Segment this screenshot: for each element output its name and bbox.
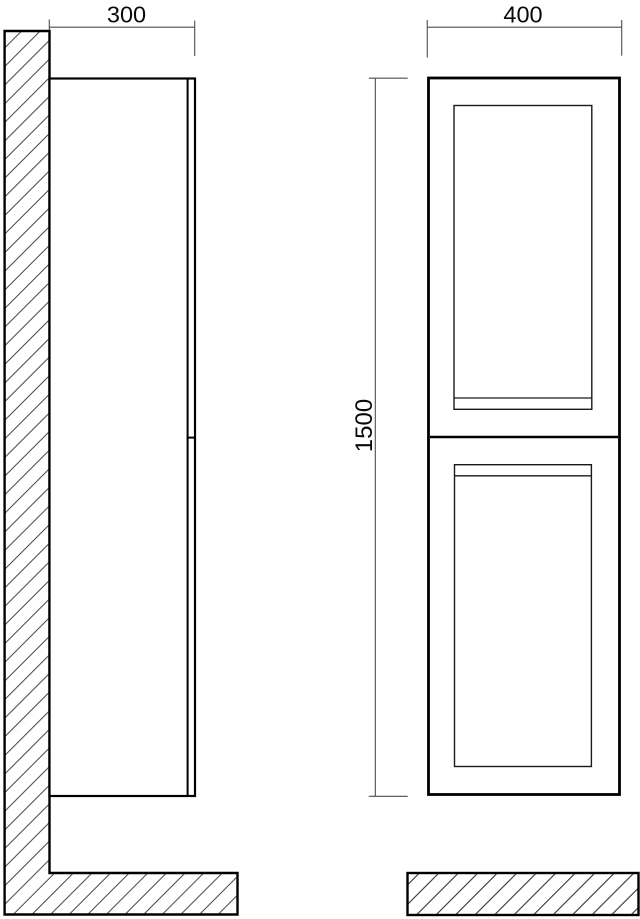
svg-text:300: 300 bbox=[107, 1, 146, 27]
svg-text:400: 400 bbox=[503, 1, 542, 27]
svg-text:1500: 1500 bbox=[351, 399, 378, 452]
